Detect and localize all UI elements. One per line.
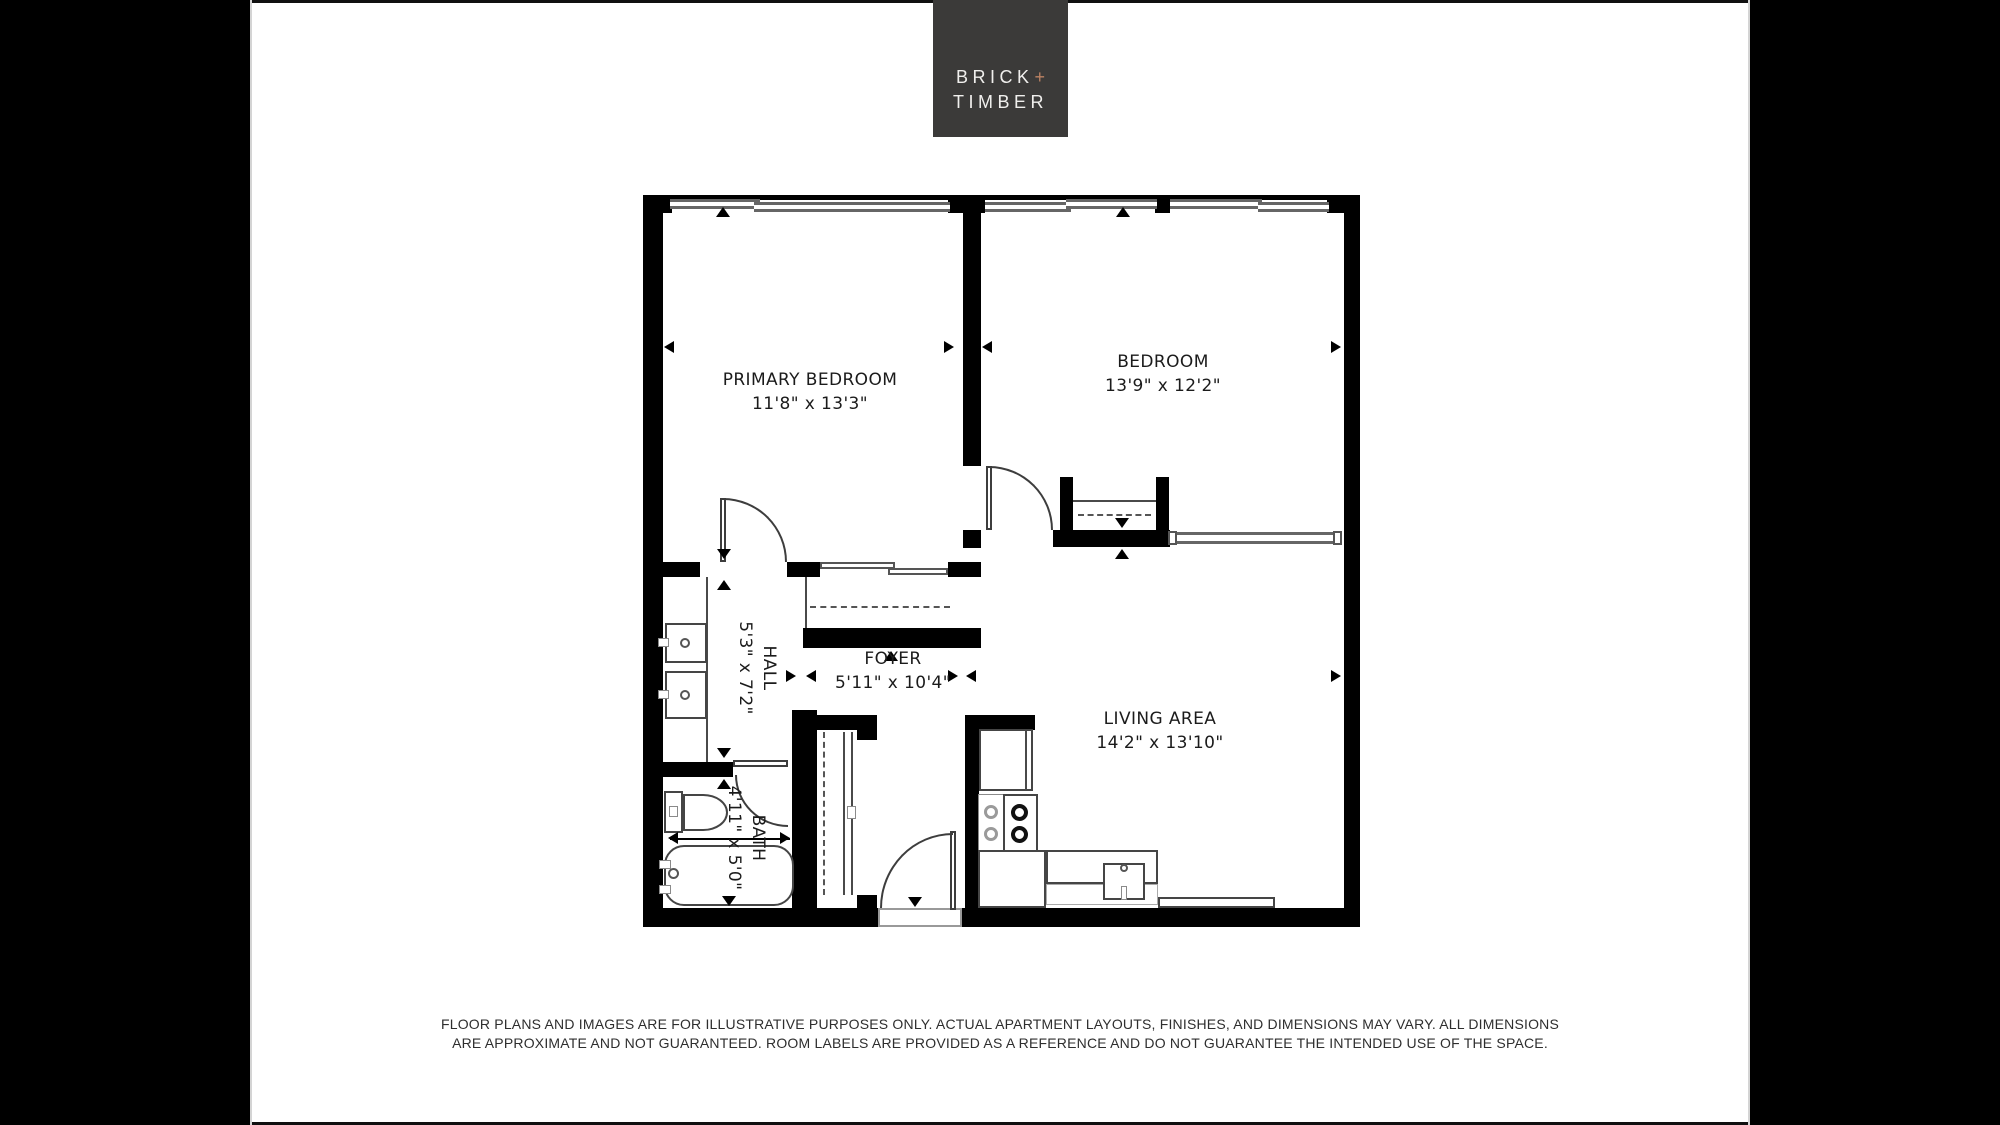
burner-right-bottom — [1011, 826, 1028, 843]
tub-faucet — [668, 868, 679, 879]
coat-closet-rod — [823, 732, 825, 895]
vanity-sink-1-drain — [680, 638, 690, 648]
wall-primary-bottom-left — [643, 562, 700, 577]
wall-bedroom-bottom — [1053, 530, 1170, 547]
room-name: PRIMARY BEDROOM — [723, 368, 898, 392]
burner-left-bottom — [984, 827, 998, 841]
disclaimer-line-1: FLOOR PLANS AND IMAGES ARE FOR ILLUSTRAT… — [252, 1015, 1748, 1034]
wall-top-corner-left — [643, 195, 672, 213]
wall-bedroom-divider — [963, 199, 981, 466]
dimension-arrow — [982, 341, 992, 353]
wall-right — [1344, 195, 1360, 927]
room-dimensions: 4'11" x 5'0" — [722, 786, 746, 891]
wall-kitchen-left — [965, 715, 979, 908]
coat-closet-door-line-3 — [851, 818, 853, 895]
wall-primary-bottom-right — [948, 562, 981, 577]
burner-right-top — [1011, 804, 1028, 821]
dimension-arrow — [1116, 207, 1130, 217]
kitchen-faucet — [1120, 864, 1128, 872]
coat-closet-handle — [847, 806, 856, 819]
room-dimensions: 5'11" x 10'4" — [835, 671, 951, 695]
room-label-hall: HALL 5'3" x 7'2" — [733, 621, 781, 715]
bedroom-closet-front-line — [1073, 500, 1156, 502]
room-label-living-area: LIVING AREA 14'2" x 13'10" — [1096, 707, 1223, 755]
wall-primary-bottom-mid — [787, 562, 820, 577]
window-primary-2 — [754, 202, 950, 212]
slider-cap-left — [1168, 531, 1177, 545]
tub-fixture-bottom — [659, 885, 671, 894]
room-name: HALL — [757, 621, 781, 715]
brand-logo: BRICK+ TIMBER — [933, 0, 1068, 137]
dimension-arrow — [668, 832, 678, 844]
right-edge-line — [1748, 0, 1750, 1125]
room-name: FOYER — [835, 647, 951, 671]
dimension-arrow — [780, 832, 790, 844]
coat-closet-door-line-2 — [851, 732, 853, 812]
disclaimer-line-2: ARE APPROXIMATE AND NOT GUARANTEED. ROOM… — [252, 1034, 1748, 1053]
room-name: BEDROOM — [1105, 350, 1221, 374]
toilet-button — [669, 806, 678, 817]
primary-closet-slider-1 — [820, 562, 895, 569]
stove — [1003, 794, 1038, 852]
room-dimensions: 14'2" x 13'10" — [1096, 731, 1223, 755]
wall-bath-right — [792, 710, 817, 908]
room-dimensions: 11'8" x 13'3" — [723, 392, 898, 416]
entry-threshold — [878, 908, 962, 927]
room-dimensions: 5'3" x 7'2" — [733, 621, 757, 715]
wall-closet-bottom — [803, 628, 981, 648]
primary-closet-side-line — [805, 577, 807, 628]
dimension-arrow — [717, 580, 731, 590]
room-label-bedroom: BEDROOM 13'9" x 12'2" — [1105, 350, 1221, 398]
dimension-arrow — [722, 896, 736, 906]
bedroom-door-swing — [989, 466, 1053, 530]
vanity-counter-edge — [706, 577, 708, 762]
slider-cap-right — [1333, 531, 1342, 545]
primary-door-swing — [723, 498, 787, 562]
coat-closet-door-line-1 — [843, 732, 845, 895]
wall-divider-block — [963, 530, 981, 548]
floor-plan-page: BRICK+ TIMBER — [0, 0, 2000, 1125]
dimension-arrow — [908, 897, 922, 907]
window-primary-1 — [670, 199, 760, 209]
window-bedroom-1 — [985, 202, 1071, 212]
coat-closet-block-top — [857, 715, 877, 740]
bedroom-closet-stub-left — [1060, 477, 1073, 530]
dimension-arrow — [1115, 518, 1129, 528]
left-black-bar — [0, 0, 250, 1125]
room-dimensions: 13'9" x 12'2" — [1105, 374, 1221, 398]
dimension-arrow — [717, 748, 731, 758]
stove-left-panel — [978, 794, 1004, 852]
kitchen-sink-handle — [1121, 886, 1127, 900]
plus-icon: + — [1035, 67, 1046, 87]
primary-closet-rod — [810, 606, 950, 608]
wall-top-corner-right — [1327, 195, 1360, 213]
dimension-arrow — [1115, 549, 1129, 559]
dimension-arrow — [1331, 341, 1341, 353]
bedroom-living-slider — [1172, 532, 1342, 544]
kitchen-counter-base — [978, 850, 1046, 908]
bath-door-leaf — [733, 760, 788, 767]
refrigerator-door-line — [1025, 730, 1027, 790]
vanity-sink-2-drain — [680, 690, 690, 700]
room-name: BATH — [746, 786, 770, 891]
coat-closet-block-bottom — [857, 895, 877, 908]
window-bedroom-3 — [1170, 199, 1262, 209]
vanity-faucet-1 — [658, 638, 669, 647]
wall-bath-top — [643, 762, 733, 777]
dimension-arrow — [717, 549, 731, 559]
window-bedroom-2 — [1066, 199, 1157, 209]
brand-line2: TIMBER — [953, 90, 1048, 115]
wall-left — [643, 195, 663, 927]
burner-left-top — [984, 805, 998, 819]
wall-bottom — [643, 908, 1360, 927]
room-label-bath: BATH 4'11" x 5'0" — [722, 786, 770, 891]
vanity-faucet-2 — [658, 690, 669, 699]
kitchen-low-counter — [1158, 897, 1275, 908]
window-bedroom-4 — [1258, 202, 1329, 212]
room-label-foyer: FOYER 5'11" x 10'4" — [835, 647, 951, 695]
dimension-arrow — [944, 341, 954, 353]
dimension-arrow — [786, 670, 796, 682]
dimension-arrow — [966, 670, 976, 682]
room-name: LIVING AREA — [1096, 707, 1223, 731]
disclaimer-text: FLOOR PLANS AND IMAGES ARE FOR ILLUSTRAT… — [252, 1015, 1748, 1053]
dimension-arrow — [806, 670, 816, 682]
primary-closet-slider-2 — [888, 568, 948, 575]
dimension-arrow — [664, 341, 674, 353]
wall-top-stub — [1155, 195, 1170, 213]
dimension-arrow — [1331, 670, 1341, 682]
bedroom-closet-stub-right — [1156, 477, 1169, 530]
bedroom-closet-rod — [1078, 514, 1151, 516]
left-edge-line — [250, 0, 252, 1125]
brand-line1: BRICK+ — [956, 65, 1045, 90]
dimension-arrow — [716, 207, 730, 217]
tub-fixture-top — [659, 860, 671, 869]
room-label-primary-bedroom: PRIMARY BEDROOM 11'8" x 13'3" — [723, 368, 898, 416]
right-black-bar — [1750, 0, 2000, 1125]
